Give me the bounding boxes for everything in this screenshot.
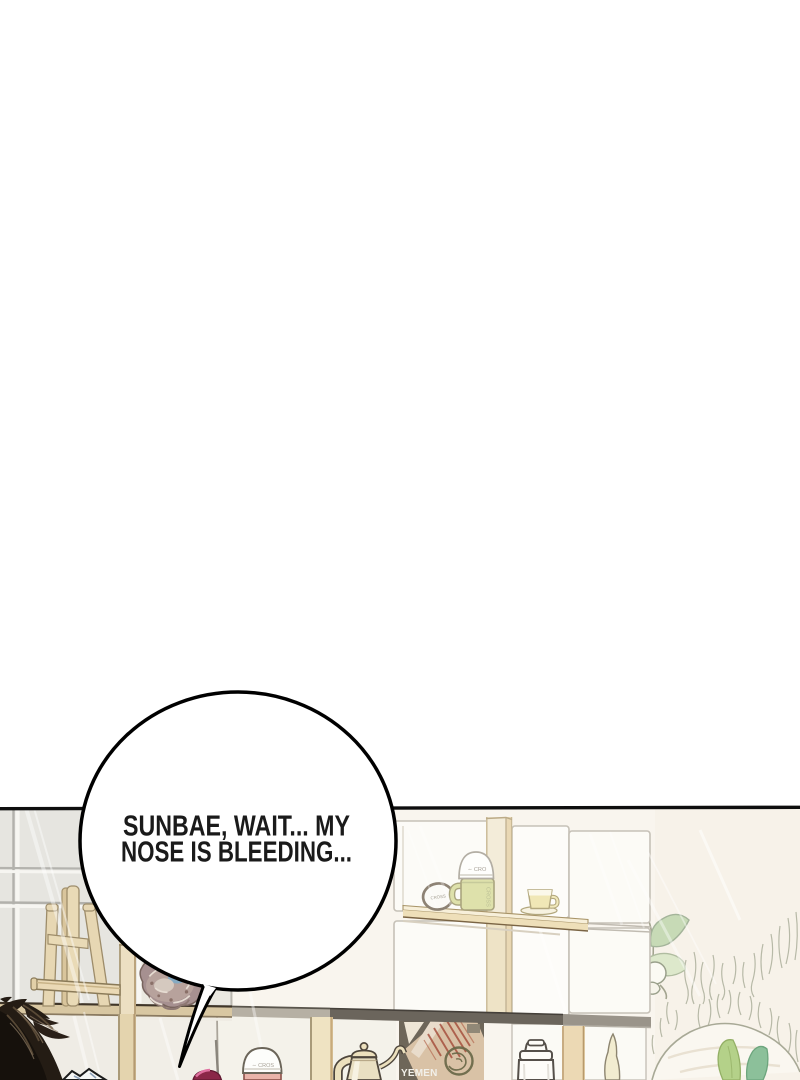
svg-text:CROSS: CROSS bbox=[485, 887, 491, 907]
svg-text:∼ CRO: ∼ CRO bbox=[468, 867, 487, 873]
svg-text:∼ CROS: ∼ CROS bbox=[252, 1063, 274, 1069]
svg-text:YEMEN: YEMEN bbox=[401, 1068, 438, 1079]
svg-text:NOSE IS BLEEDING...: NOSE IS BLEEDING... bbox=[121, 837, 352, 869]
